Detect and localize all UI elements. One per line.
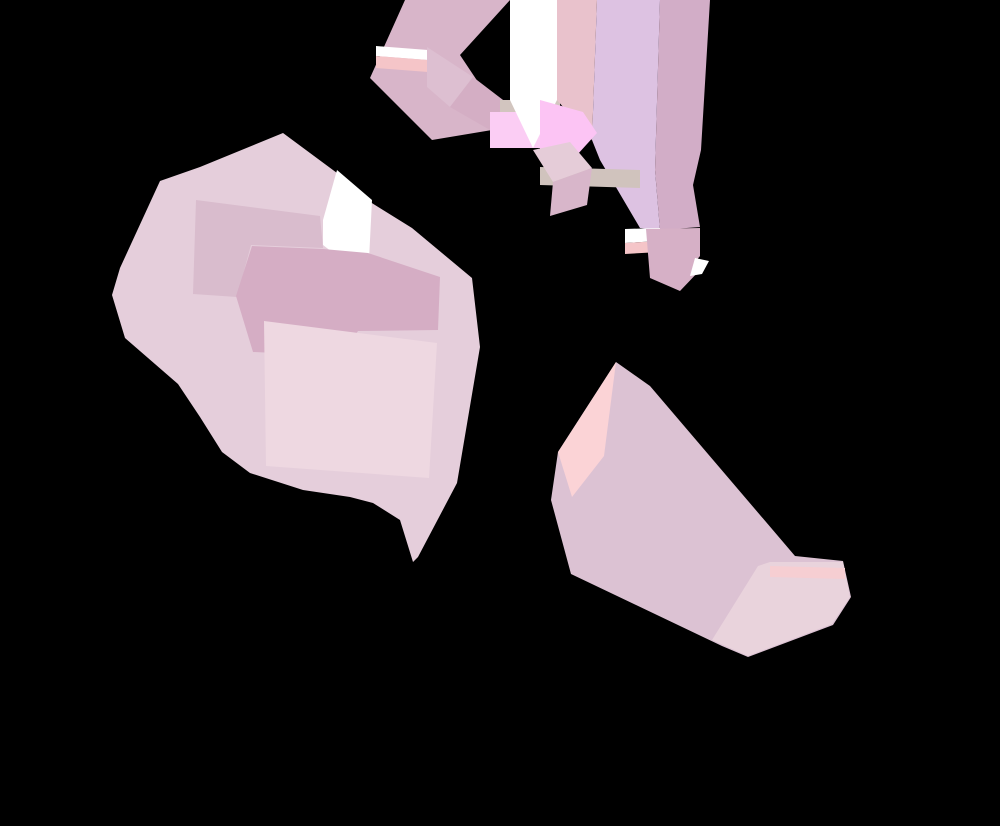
artwork-stage [0,0,1000,826]
boot-toe-salmon [770,566,845,579]
polygon-canvas [0,0,1000,826]
blob-light-square [264,321,437,478]
